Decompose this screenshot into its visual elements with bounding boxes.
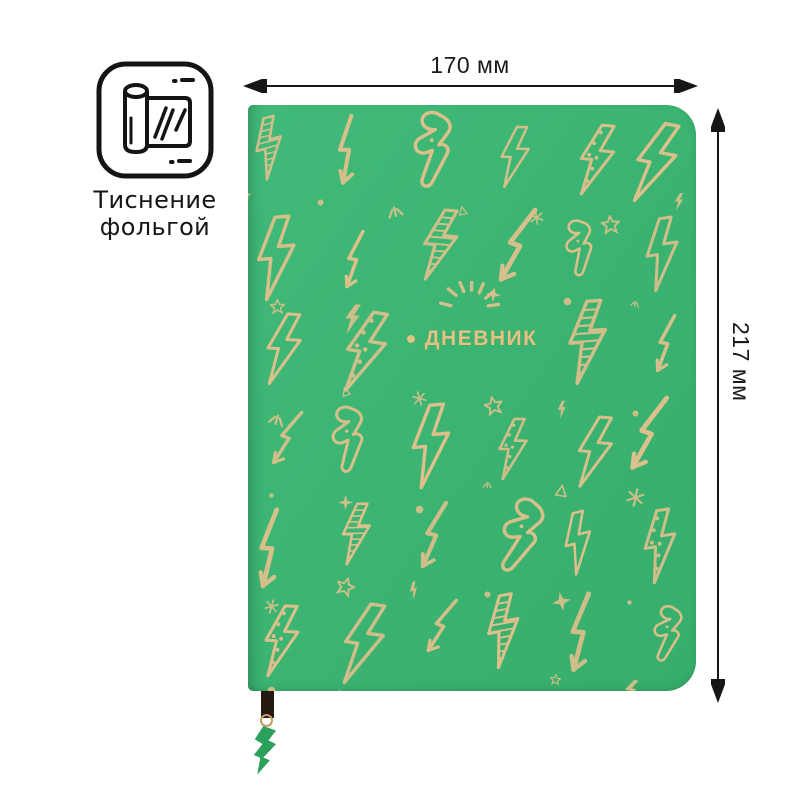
foil-badge-label-line2: фольгой: [62, 214, 248, 241]
width-dimension-arrow: [238, 79, 702, 93]
foil-badge-label: Тиснение фольгой: [62, 187, 248, 241]
width-dimension-label: 170 мм: [320, 52, 620, 79]
diary-title: ДНЕВНИК: [425, 327, 538, 351]
title-bullet-dot: [407, 335, 415, 343]
product-image: Тиснение фольгой 170 мм 217 мм: [0, 0, 800, 800]
height-dimension-arrow: [711, 103, 725, 707]
lightning-pattern: [248, 105, 696, 691]
lightning-charm: [251, 725, 280, 775]
foil-stamping-icon: [95, 60, 215, 180]
height-dimension-label: 217 мм: [727, 322, 754, 482]
title-row: ДНЕВНИК: [248, 327, 696, 351]
foil-badge: Тиснение фольгой: [62, 60, 248, 241]
foil-badge-label-line1: Тиснение: [62, 187, 248, 214]
notebook-cover: ДНЕВНИК: [248, 105, 696, 691]
